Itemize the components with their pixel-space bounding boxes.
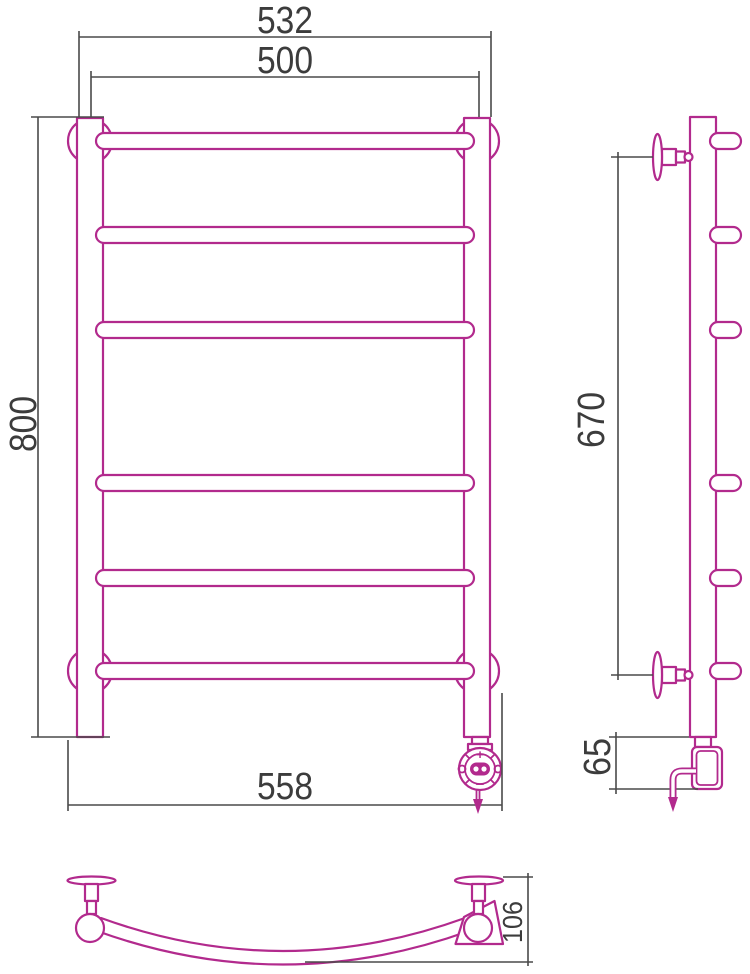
- rung-end: [710, 322, 741, 338]
- bottom-view: [68, 877, 504, 965]
- heater-regulator: + −: [459, 737, 502, 793]
- bracket-stem-narrow: [87, 901, 96, 914]
- rung-end: [710, 570, 741, 586]
- technical-drawing: + −: [0, 0, 750, 974]
- dim-label-670: 670: [571, 392, 613, 448]
- dim-front-rail-width: 500: [91, 40, 479, 117]
- bracket-stem: [662, 667, 676, 683]
- bracket-flange: [653, 134, 662, 180]
- dim-label-532: 532: [257, 0, 313, 42]
- bracket-pin: [685, 671, 693, 679]
- cable-arrow-icon: [473, 799, 483, 814]
- curved-rail: [97, 918, 469, 965]
- left-post: [77, 118, 103, 737]
- cable-arrow-icon: [668, 797, 678, 812]
- dim-label-500: 500: [257, 40, 313, 82]
- rung: [96, 322, 474, 338]
- plus-symbol: +: [476, 747, 484, 762]
- bracket-stem: [662, 149, 676, 165]
- dim-label-558: 558: [257, 766, 313, 808]
- front-view: + −: [68, 118, 502, 793]
- rung-end: [710, 227, 741, 243]
- indicator-dot: [473, 766, 478, 771]
- side-post: [690, 117, 716, 737]
- rungs: [96, 133, 474, 679]
- bracket-stem-narrow: [474, 901, 483, 914]
- bracket-stem: [85, 884, 98, 901]
- rung-end: [710, 475, 741, 491]
- power-indicator: [470, 763, 490, 776]
- rung: [96, 570, 474, 586]
- rung: [96, 663, 474, 679]
- dim-side-heater-offset: 65: [577, 732, 698, 794]
- rung: [96, 475, 474, 491]
- front-power-cable: [473, 790, 483, 814]
- dim-side-bracket-span: 670: [571, 152, 653, 680]
- side-wall-bracket-bottom: [653, 652, 693, 698]
- rail-elbow-ball: [464, 914, 492, 942]
- right-post: [464, 118, 490, 737]
- side-heater-box: [692, 737, 722, 789]
- rail-elbow-ball: [76, 914, 104, 942]
- dim-label-65: 65: [577, 738, 619, 776]
- bracket-flange: [653, 652, 662, 698]
- bracket-pin: [685, 153, 693, 161]
- side-wall-bracket-top: [653, 134, 693, 180]
- indicator-dot: [481, 766, 486, 771]
- rung-end: [710, 663, 741, 679]
- dim-label-106: 106: [497, 901, 528, 943]
- rung-end: [710, 133, 741, 149]
- dim-front-bottom-width: 558: [68, 693, 502, 811]
- rung: [96, 133, 474, 149]
- dim-label-800: 800: [3, 396, 45, 452]
- side-view: [653, 117, 741, 789]
- towel-rail-drawing: + −: [0, 0, 750, 974]
- rung: [96, 227, 474, 243]
- heater-neck: [695, 737, 711, 747]
- bracket-stem: [472, 884, 485, 901]
